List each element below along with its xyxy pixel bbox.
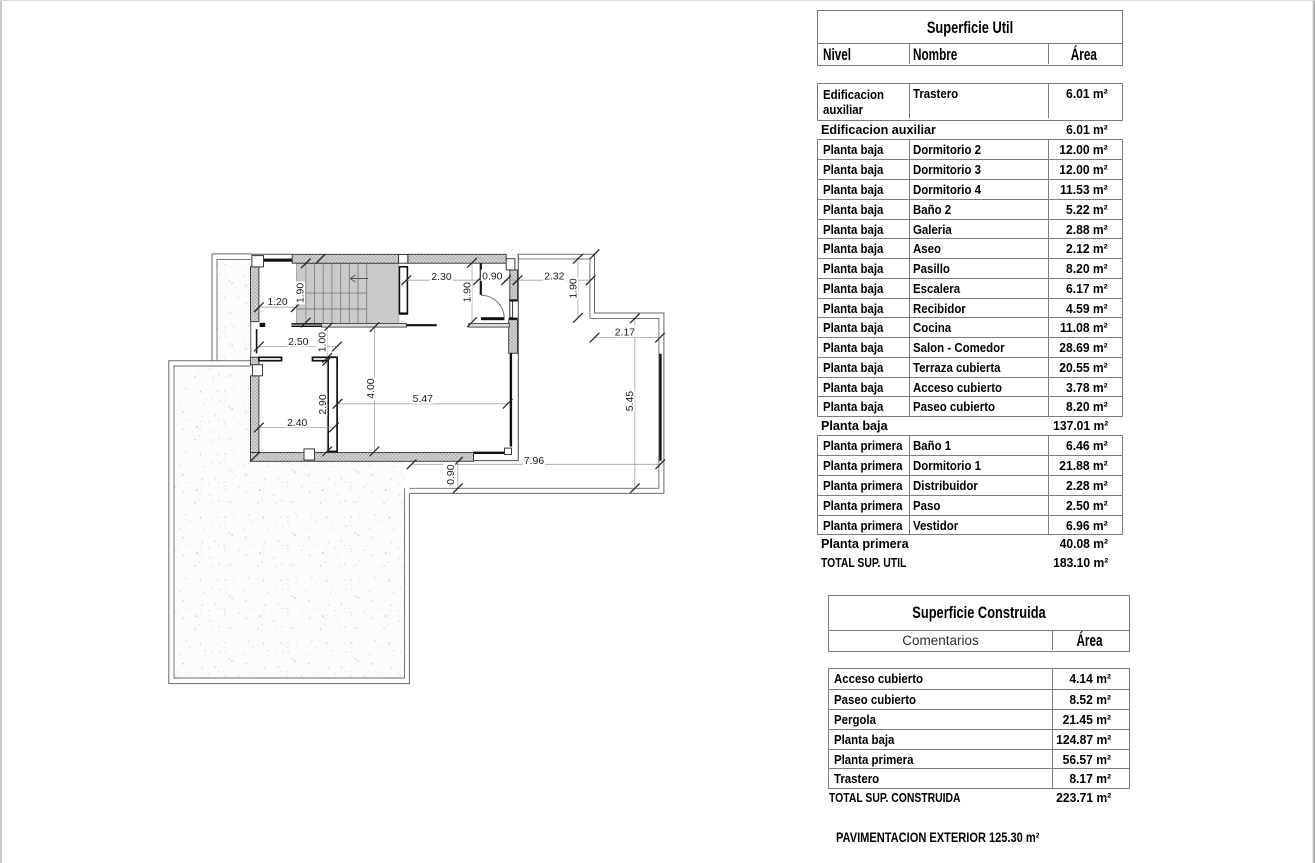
svg-text:2.90: 2.90: [318, 394, 329, 414]
svg-text:4.00: 4.00: [366, 378, 377, 398]
svg-text:1.20: 1.20: [267, 297, 287, 308]
svg-text:5.45: 5.45: [625, 391, 636, 411]
svg-text:0.90: 0.90: [482, 272, 502, 283]
svg-text:5.47: 5.47: [413, 394, 433, 405]
svg-text:2.50: 2.50: [288, 337, 308, 348]
svg-text:7.96: 7.96: [524, 456, 544, 467]
svg-text:2.30: 2.30: [431, 272, 451, 283]
svg-text:1.90: 1.90: [295, 283, 306, 303]
svg-text:2.40: 2.40: [287, 418, 307, 429]
svg-text:0.90: 0.90: [446, 464, 457, 484]
svg-text:2.17: 2.17: [615, 328, 635, 339]
svg-text:1.90: 1.90: [462, 282, 473, 302]
svg-text:2.32: 2.32: [544, 272, 564, 283]
svg-text:1.00: 1.00: [318, 332, 329, 352]
svg-text:1.90: 1.90: [569, 278, 580, 298]
